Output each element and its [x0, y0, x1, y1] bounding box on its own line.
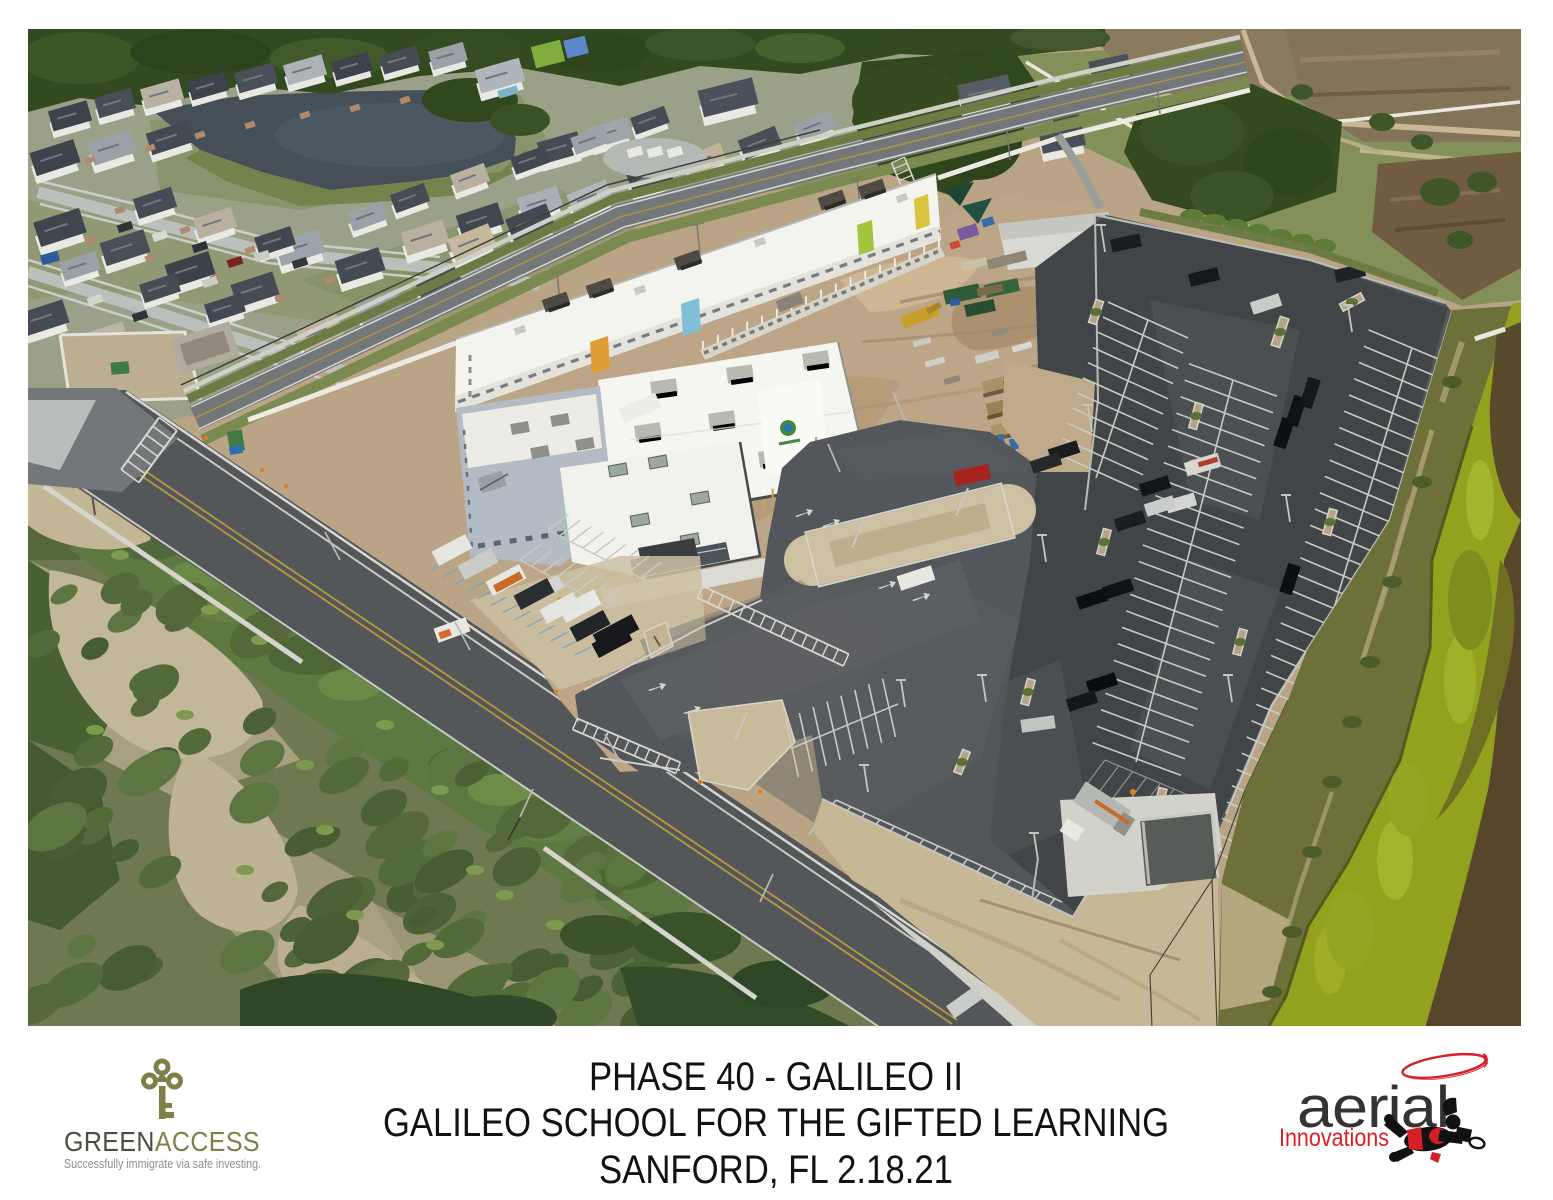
svg-text:SANFORD, FL 2.18.21: SANFORD, FL 2.18.21 [599, 1148, 953, 1192]
svg-text:GALILEO SCHOOL FOR THE GIFTED: GALILEO SCHOOL FOR THE GIFTED LEARNING [383, 1101, 1169, 1145]
svg-text:Innovations: Innovations [1279, 1124, 1389, 1152]
svg-text:GREENACCESS: GREENACCESS [64, 1126, 260, 1157]
svg-text:Successfully immigrate via saf: Successfully immigrate via safe investin… [64, 1156, 261, 1171]
svg-text:PHASE 40 - GALILEO II: PHASE 40 - GALILEO II [589, 1055, 963, 1099]
